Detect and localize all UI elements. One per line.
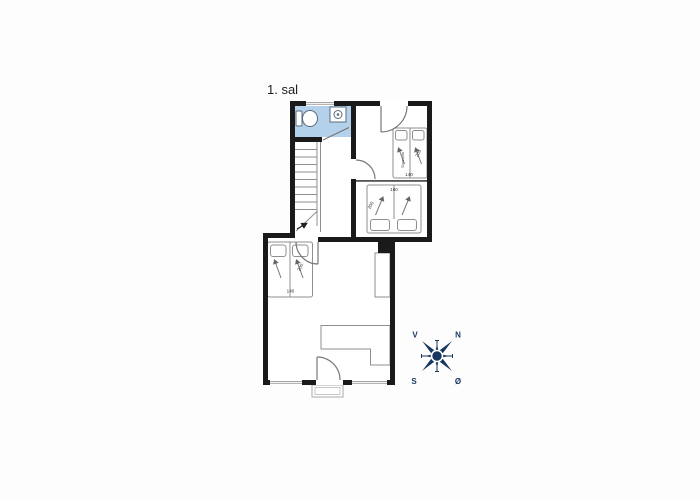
compass-label-east: Ø bbox=[455, 377, 461, 386]
floorplan-page: 1. sal Sovesofa bbox=[0, 0, 700, 500]
bedroom-right-beds: Sovesofa 200 140 bbox=[393, 128, 427, 178]
wardrobe bbox=[375, 253, 390, 297]
bedroom-middle-beds: 160 200 bbox=[367, 185, 421, 233]
toilet-icon bbox=[296, 111, 318, 127]
bed-dimension-label: 140 bbox=[405, 172, 413, 177]
compass-label-south: S bbox=[411, 377, 417, 386]
bed-dimension-label: Sovesofa bbox=[401, 151, 405, 168]
floorplan-canvas: 1. sal Sovesofa bbox=[0, 0, 700, 500]
entry-step bbox=[312, 385, 343, 397]
compass-rose: V N S Ø bbox=[411, 331, 461, 387]
compass-label-west: V bbox=[412, 331, 418, 340]
bed-dimension-label: 140 bbox=[287, 289, 295, 294]
left-bed-group: 200 140 bbox=[268, 242, 313, 297]
floor-title: 1. sal bbox=[267, 82, 298, 97]
compass-label-north: N bbox=[455, 331, 461, 340]
shower-icon bbox=[330, 107, 346, 122]
bed-dimension-label: 160 bbox=[390, 187, 398, 192]
